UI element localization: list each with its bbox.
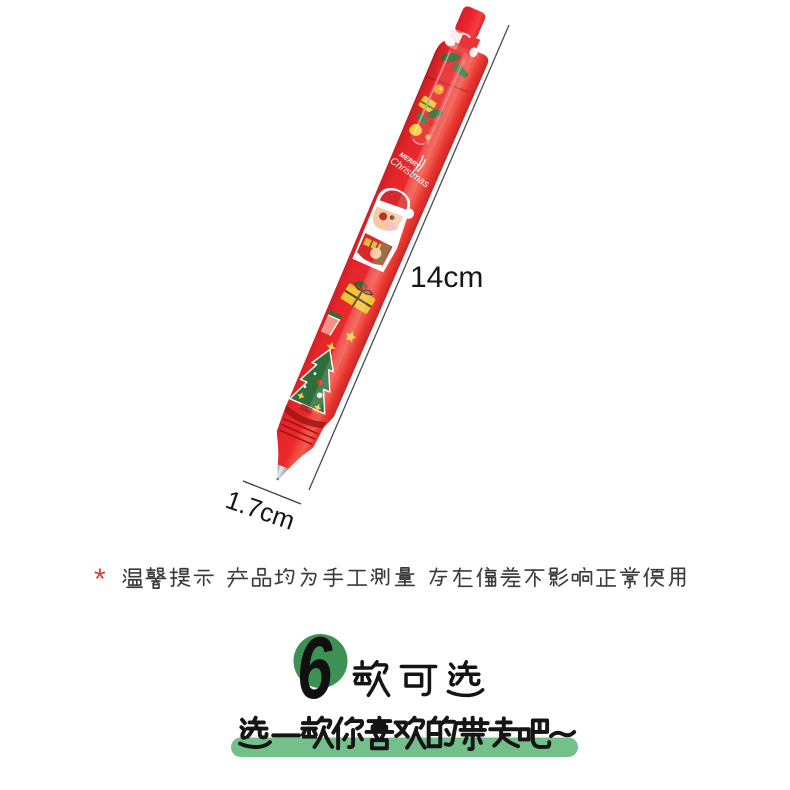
svg-text:14cm: 14cm	[410, 261, 483, 294]
svg-text:*: *	[94, 563, 106, 596]
svg-text:6: 6	[297, 620, 333, 718]
